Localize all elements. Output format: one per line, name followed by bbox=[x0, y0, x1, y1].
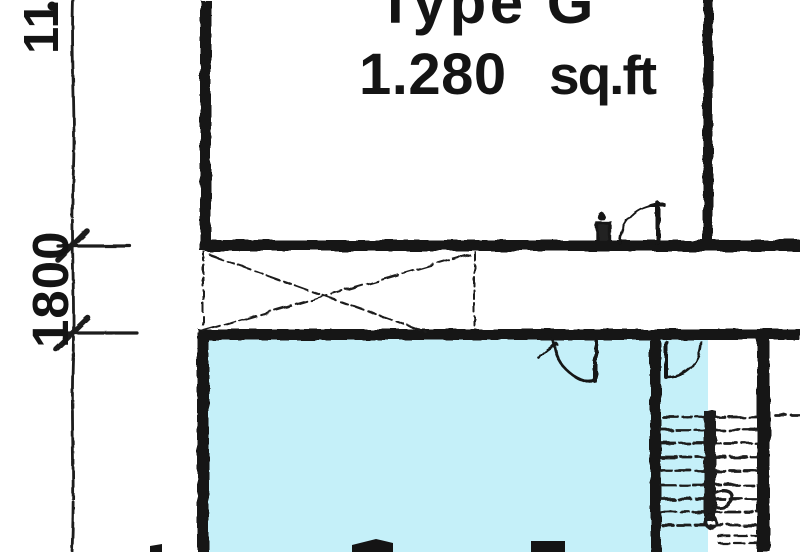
svg-text:11.: 11. bbox=[15, 0, 69, 54]
svg-text:Type G: Type G bbox=[377, 0, 597, 36]
svg-text:1.280: 1.280 bbox=[359, 42, 507, 107]
svg-text:sq.ft: sq.ft bbox=[549, 44, 657, 106]
svg-text:1800: 1800 bbox=[22, 231, 79, 348]
